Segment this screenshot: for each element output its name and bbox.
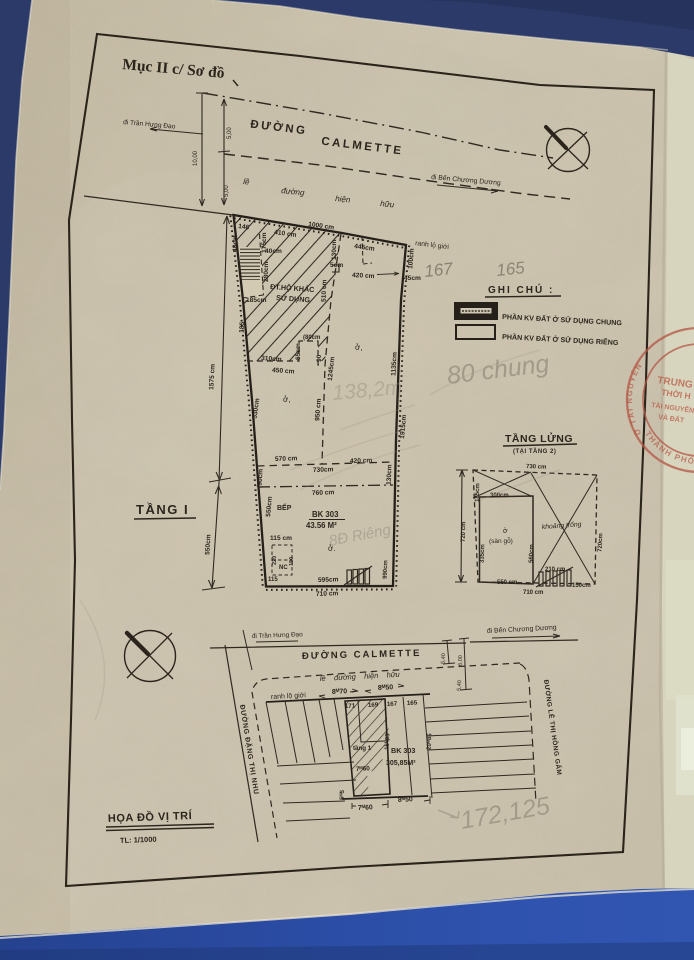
svg-text:167: 167 — [387, 700, 398, 708]
svg-text:ở: ở — [503, 527, 508, 535]
svg-text:5cm: 5cm — [330, 262, 343, 269]
svg-text:305,85M²: 305,85M² — [386, 760, 416, 767]
svg-text:(sàn gỗ): (sàn gỗ) — [489, 536, 513, 545]
svg-text:NC: NC — [279, 565, 288, 571]
svg-text:8ᴹ70: 8ᴹ70 — [332, 688, 348, 696]
svg-text:5,00: 5,00 — [224, 185, 230, 197]
svg-text:115 cm: 115 cm — [270, 535, 292, 542]
svg-text:550 cm: 550 cm — [497, 580, 517, 586]
svg-text:420 cm: 420 cm — [352, 272, 375, 280]
svg-text:570 cm: 570 cm — [275, 455, 298, 463]
svg-text:48cm: 48cm — [232, 235, 239, 252]
svg-text:280cm: 280cm — [263, 261, 270, 282]
svg-text:169: 169 — [368, 701, 379, 709]
svg-text:560cm: 560cm — [529, 544, 536, 563]
svg-text:720 cm: 720 cm — [461, 522, 468, 543]
svg-text:BK 303: BK 303 — [391, 746, 415, 755]
svg-text:hiện: hiện — [335, 194, 352, 205]
svg-text:5,00: 5,00 — [227, 127, 233, 139]
svg-text:GHI CHÚ :: GHI CHÚ : — [488, 283, 554, 296]
svg-text:185: 185 — [238, 321, 246, 333]
svg-text:(TẠI TẦNG 2): (TẠI TẦNG 2) — [513, 448, 556, 455]
svg-text:8ᴹ50: 8ᴹ50 — [398, 796, 413, 804]
svg-text:6,00: 6,00 — [457, 655, 464, 666]
svg-text:100cm: 100cm — [407, 248, 415, 269]
svg-text:1575 cm: 1575 cm — [208, 364, 216, 390]
svg-text:165: 165 — [407, 699, 418, 707]
svg-text:510 cm: 510 cm — [321, 279, 329, 302]
svg-text:20ᴹ85: 20ᴹ85 — [426, 733, 434, 750]
svg-text:1135cm: 1135cm — [390, 352, 398, 376]
svg-text:hữu: hữu — [380, 199, 395, 209]
svg-text:730cm: 730cm — [313, 466, 334, 474]
svg-text:210 cm: 210 cm — [545, 567, 565, 573]
svg-text:760 cm: 760 cm — [312, 489, 335, 497]
svg-text:550cm: 550cm — [204, 534, 212, 555]
svg-text:710 cm: 710 cm — [523, 590, 543, 596]
svg-text:171: 171 — [345, 702, 356, 710]
svg-text:720cm: 720cm — [597, 533, 604, 552]
svg-text:165: 165 — [495, 258, 526, 280]
svg-text:150: 150 — [289, 557, 295, 566]
svg-text:tầng 1: tầng 1 — [353, 745, 372, 752]
svg-text:TẦNG I: TẦNG I — [136, 502, 189, 517]
svg-text:90: 90 — [316, 354, 323, 362]
svg-text:TẦNG LỬNG: TẦNG LỬNG — [505, 432, 573, 445]
svg-text:335cm: 335cm — [480, 544, 487, 563]
svg-text:990cm: 990cm — [383, 560, 390, 579]
svg-text:5ᴹ5: 5ᴹ5 — [339, 789, 347, 800]
svg-text:150cm: 150cm — [572, 583, 591, 589]
svg-text:65cm: 65cm — [295, 343, 302, 360]
svg-text:220: 220 — [272, 556, 278, 565]
svg-text:ở,: ở, — [283, 395, 290, 404]
svg-text:7ᴹ60: 7ᴹ60 — [358, 804, 373, 812]
svg-text:185cm: 185cm — [246, 297, 267, 304]
svg-text:7ᴹ60: 7ᴹ60 — [356, 765, 371, 773]
svg-text:300cm: 300cm — [490, 493, 509, 499]
svg-text:BK 303: BK 303 — [312, 510, 339, 519]
svg-text:5,40: 5,40 — [456, 680, 463, 691]
svg-text:115: 115 — [268, 577, 278, 583]
svg-text:167: 167 — [423, 259, 454, 281]
svg-text:130cm: 130cm — [386, 464, 394, 485]
svg-text:(80cm: (80cm — [303, 335, 320, 341]
svg-text:730 cm: 730 cm — [526, 464, 547, 471]
svg-text:15ᴹ05: 15ᴹ05 — [384, 733, 392, 750]
svg-text:710 cm: 710 cm — [316, 590, 339, 598]
svg-text:5,40: 5,40 — [440, 653, 447, 664]
svg-text:(90cm: (90cm — [256, 468, 264, 488]
svg-text:8ᴹ50: 8ᴹ50 — [378, 684, 394, 692]
svg-text:595cm: 595cm — [318, 576, 339, 584]
svg-text:ở,: ở, — [355, 343, 362, 352]
svg-text:175cm: 175cm — [261, 232, 268, 253]
svg-text:45cm: 45cm — [404, 275, 421, 282]
svg-text:TL: 1/1000: TL: 1/1000 — [120, 835, 157, 845]
svg-text:43.56 M²: 43.56 M² — [306, 521, 337, 530]
svg-text:310cm: 310cm — [261, 355, 282, 363]
svg-text:10,00: 10,00 — [193, 150, 199, 166]
svg-text:130cm: 130cm — [331, 239, 338, 260]
